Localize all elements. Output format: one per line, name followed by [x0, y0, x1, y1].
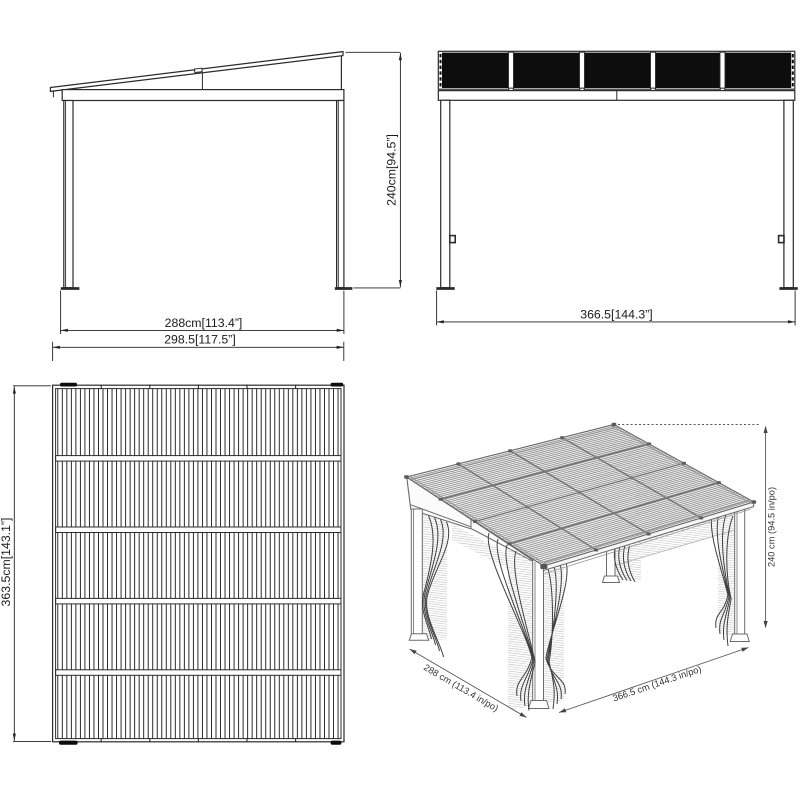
svg-text:288cm[113.4”]: 288cm[113.4”]	[165, 316, 243, 330]
svg-text:298.5[117.5”]: 298.5[117.5”]	[164, 333, 236, 347]
svg-text:240 cm (94.5 in/po): 240 cm (94.5 in/po)	[767, 487, 777, 567]
svg-text:363.5cm[143.1”]: 363.5cm[143.1”]	[0, 518, 13, 607]
svg-text:366.5[144.3”]: 366.5[144.3”]	[580, 307, 652, 321]
svg-text:240cm[94.5”]: 240cm[94.5”]	[385, 134, 399, 206]
